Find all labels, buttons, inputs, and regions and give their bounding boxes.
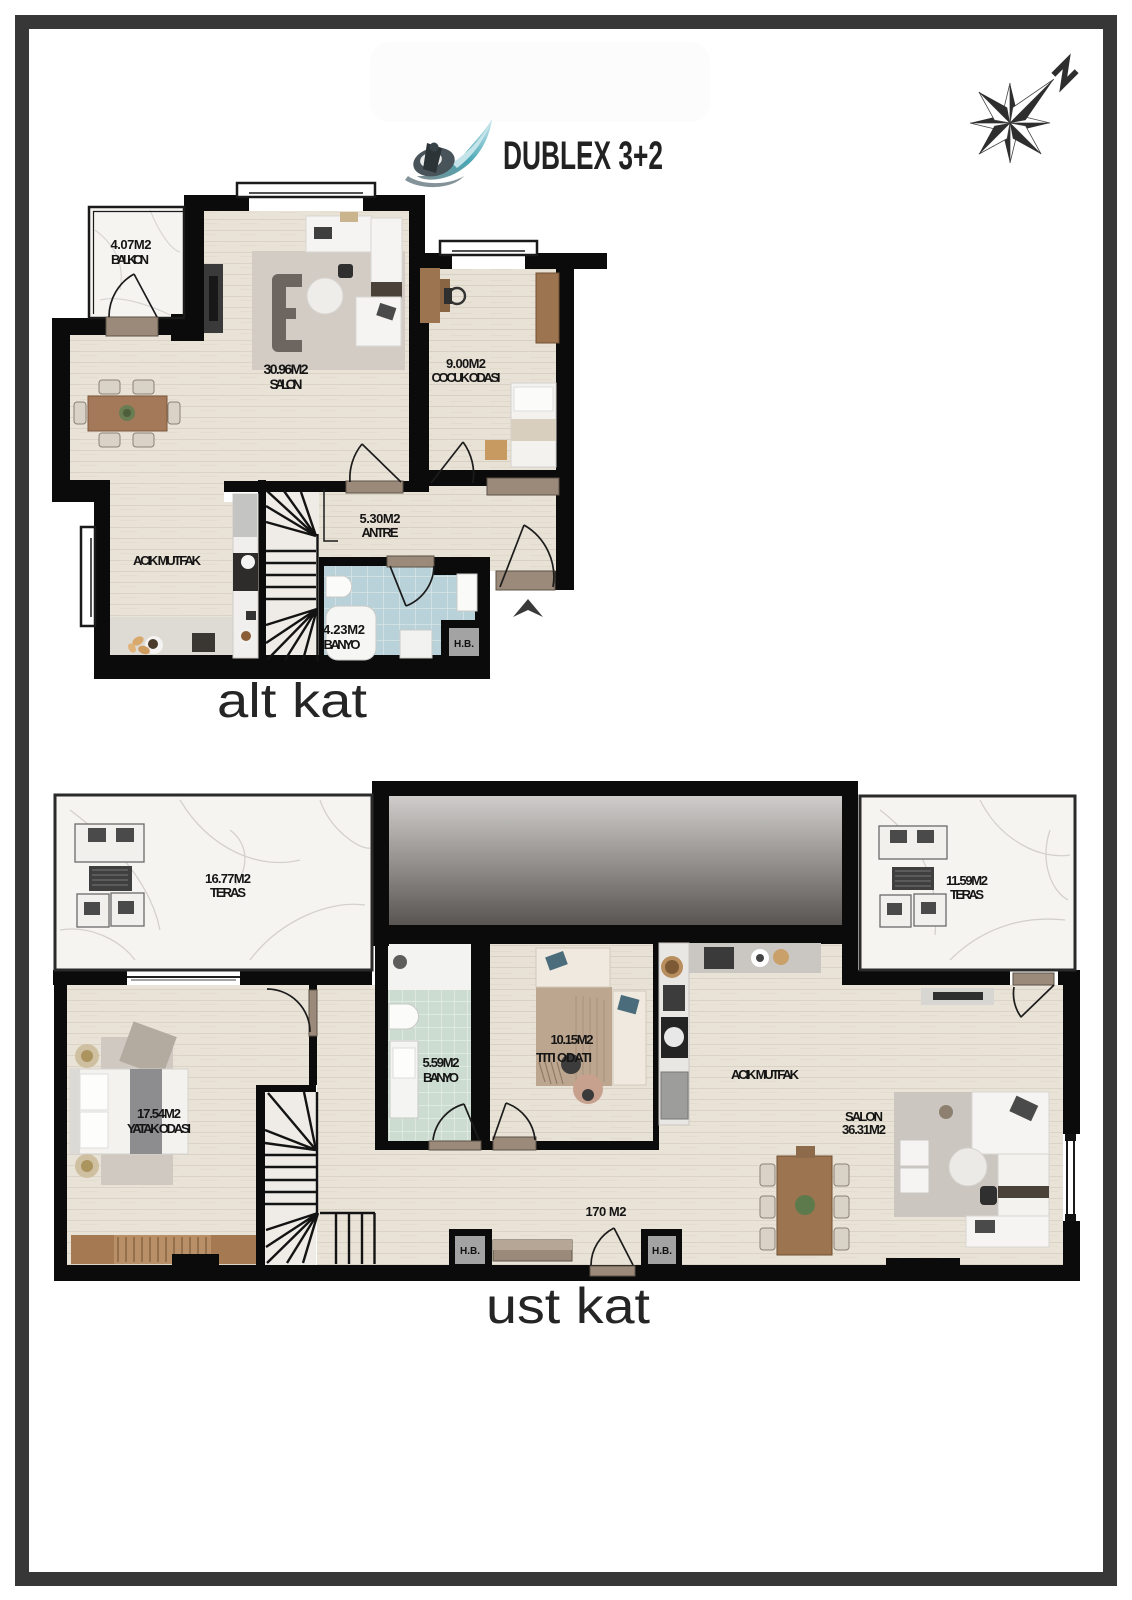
svg-text:4.07M2: 4.07M2	[111, 237, 152, 252]
svg-text:YATAK ODASI: YATAK ODASI	[127, 1121, 191, 1136]
svg-text:30.96M2: 30.96M2	[264, 361, 309, 377]
svg-text:alt kat: alt kat	[217, 675, 367, 728]
svg-text:H.B.: H.B.	[460, 1246, 480, 1257]
svg-text:ACIK MUTFAK: ACIK MUTFAK	[133, 553, 202, 568]
svg-text:DUBLEX 3+2: DUBLEX 3+2	[503, 134, 663, 178]
svg-text:ANTRE: ANTRE	[362, 525, 399, 540]
svg-text:5.59M2: 5.59M2	[423, 1055, 460, 1070]
svg-text:TERAS: TERAS	[210, 885, 246, 900]
svg-text:H.B.: H.B.	[652, 1246, 672, 1257]
svg-text:COCUK ODASI: COCUK ODASI	[432, 370, 501, 385]
svg-text:ust kat: ust kat	[486, 1278, 650, 1334]
svg-text:10.15M2: 10.15M2	[551, 1032, 594, 1047]
svg-text:9.00M2: 9.00M2	[446, 356, 486, 371]
svg-text:SALON: SALON	[270, 376, 303, 392]
svg-text:170 M2: 170 M2	[586, 1204, 627, 1219]
svg-text:BANYO: BANYO	[324, 637, 361, 652]
svg-text:H.B.: H.B.	[454, 639, 474, 650]
svg-text:17.54M2: 17.54M2	[137, 1106, 181, 1121]
svg-text:36.31M2: 36.31M2	[842, 1122, 886, 1137]
svg-text:BANYO: BANYO	[423, 1070, 459, 1085]
svg-text:BALKON: BALKON	[111, 252, 149, 267]
svg-text:16.77M2: 16.77M2	[205, 871, 251, 886]
svg-text:ACIK MUTFAK: ACIK MUTFAK	[731, 1067, 800, 1082]
svg-text:TERAS: TERAS	[950, 887, 984, 902]
svg-text:TITI ODATI: TITI ODATI	[536, 1050, 592, 1065]
svg-text:5.30M2: 5.30M2	[360, 511, 401, 526]
svg-text:4.23M2: 4.23M2	[323, 622, 365, 637]
svg-text:11.59M2: 11.59M2	[946, 873, 988, 888]
